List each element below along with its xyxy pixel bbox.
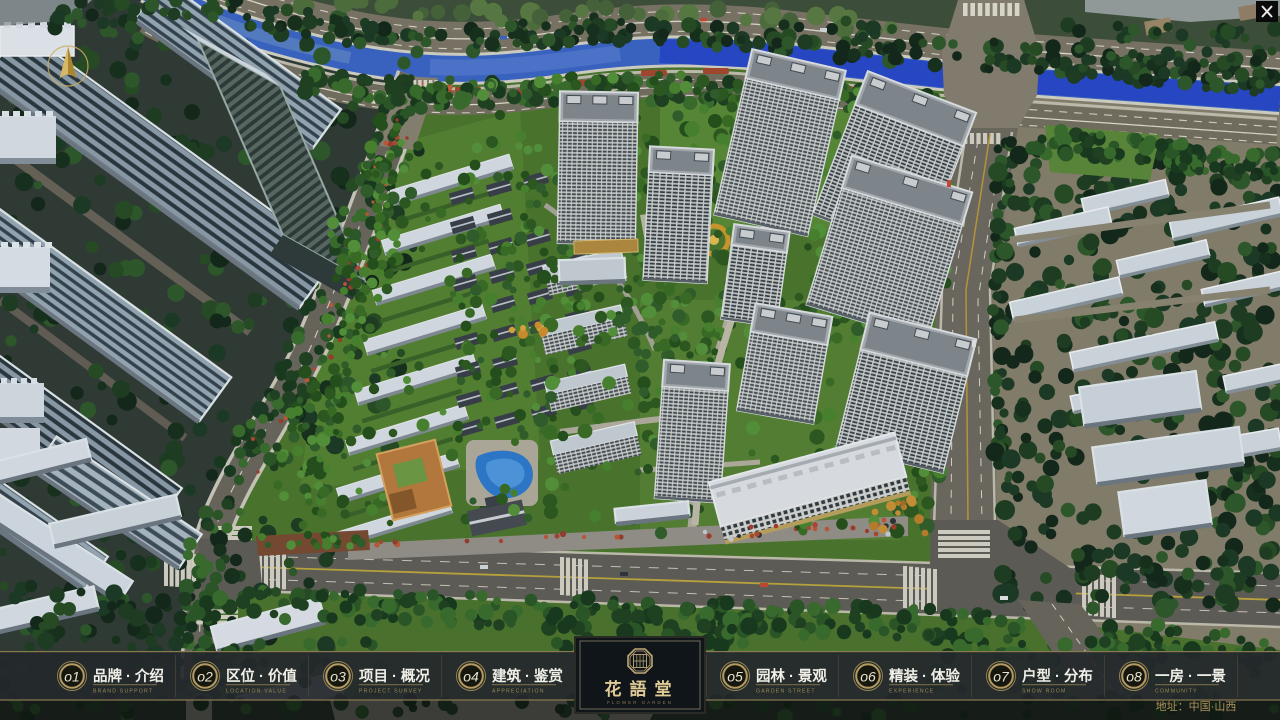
svg-text:一房 · 一景: 一房 · 一景: [1155, 667, 1226, 685]
svg-text:户型 · 分布: 户型 · 分布: [1022, 667, 1093, 685]
svg-text:精装 · 体验: 精装 · 体验: [889, 667, 960, 685]
svg-text:GARDEN STREET: GARDEN STREET: [756, 688, 816, 694]
svg-text:花語堂: 花語堂: [605, 679, 680, 699]
svg-text:o8: o8: [1126, 669, 1142, 685]
svg-text:o2: o2: [197, 669, 213, 685]
svg-text:项目 · 概况: 项目 · 概况: [359, 667, 430, 685]
svg-text:APPRECIATION: APPRECIATION: [492, 688, 545, 694]
svg-text:品牌 · 介绍: 品牌 · 介绍: [93, 667, 164, 685]
svg-text:o1: o1: [64, 669, 80, 685]
svg-text:o6: o6: [860, 669, 876, 685]
svg-text:SHOW ROOM: SHOW ROOM: [1022, 688, 1067, 694]
svg-text:o7: o7: [993, 669, 1010, 685]
svg-text:园林 · 景观: 园林 · 景观: [756, 667, 827, 685]
svg-text:LOCATION VALUE: LOCATION VALUE: [226, 688, 287, 694]
svg-text:COMMUNITY: COMMUNITY: [1155, 688, 1198, 694]
svg-text:o5: o5: [727, 669, 743, 685]
svg-text:建筑 · 鉴赏: 建筑 · 鉴赏: [492, 667, 563, 685]
svg-text:PROJECT SURVEY: PROJECT SURVEY: [359, 688, 423, 694]
svg-text:FLOWER GARDEN: FLOWER GARDEN: [607, 700, 673, 705]
svg-text:EXPERIENCE: EXPERIENCE: [889, 688, 934, 694]
svg-text:o4: o4: [463, 669, 479, 685]
svg-text:区位 · 价值: 区位 · 价值: [226, 667, 297, 685]
svg-text:o3: o3: [330, 669, 346, 685]
svg-text:BRAND SUPPORT: BRAND SUPPORT: [93, 688, 153, 694]
svg-text:地址：中国·山西: 地址：中国·山西: [1156, 699, 1237, 713]
